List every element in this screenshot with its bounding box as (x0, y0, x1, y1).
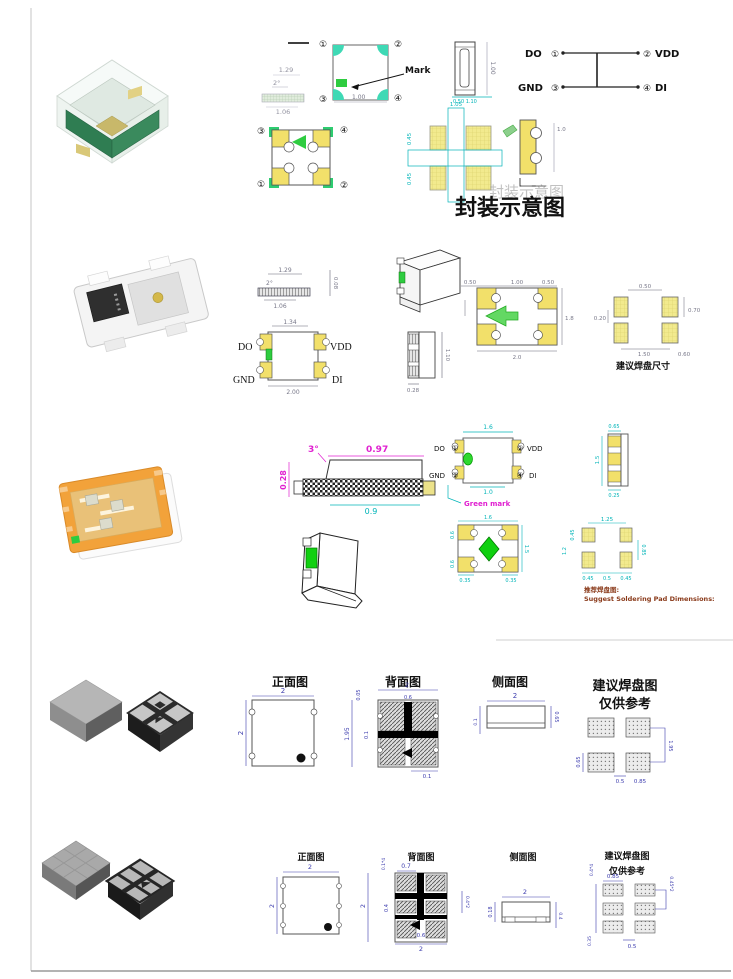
dim-label: 0.7 (401, 863, 411, 870)
pin-number: ① (451, 444, 458, 453)
dim-label: 0.60 (678, 352, 691, 358)
pad (397, 901, 416, 913)
row3-bottom-view: 1.6 0.6 0.6 1.5 0.35 0.35 (450, 515, 529, 584)
pad (426, 921, 445, 938)
pin-number: ② (340, 181, 348, 191)
pad (635, 884, 655, 896)
pad (430, 166, 446, 190)
pin-number: ① (319, 40, 327, 50)
pad (466, 126, 491, 150)
row1-pinout-diagram: DO ① ② VDD GND ③ ④ DI (518, 49, 679, 94)
row1-top-view: ① ② ③ ④ Mark 1.00 (319, 40, 432, 105)
dim-label: 0.20 (594, 316, 607, 322)
dim-label: 0.45*2 (668, 876, 674, 891)
green-mark (306, 548, 317, 568)
dim-label: 0.08 (332, 277, 338, 290)
row3-side-view: 0.65 1.5 0.25 (595, 424, 628, 499)
pin-number: ② (643, 50, 651, 60)
green-mark (266, 349, 272, 360)
row3-pad-caption-en: Suggest Soldering Pad Dimensions: (584, 595, 715, 603)
dim-label: 2 (419, 945, 423, 953)
dim-label: 0.45 (407, 172, 413, 185)
dim-label: 2 (513, 692, 517, 700)
dim-label: 0.1*4 (381, 858, 387, 870)
pin-label: VDD (527, 445, 543, 453)
green-mark (503, 125, 517, 137)
pin-number: ③ (319, 95, 327, 105)
dim-label: 2 (359, 904, 367, 908)
dim-label: 1.95 (344, 727, 351, 741)
row4-pads-subtitle: 仅供参考 (598, 696, 651, 712)
dim-label: 0.6 (450, 531, 456, 539)
pad (430, 126, 446, 150)
dim-label: 0.65 (553, 711, 559, 722)
dim-label: 1.8 (565, 316, 574, 322)
pin-label: GND (233, 375, 255, 386)
dim-label: 1.06 (276, 108, 290, 116)
row4-pads-title: 建议焊盘图 (592, 678, 657, 694)
pad (635, 921, 655, 933)
dim-label: 0.65 (576, 756, 582, 767)
row1-side-sketch: 1.0 (503, 120, 566, 186)
row2-white-led-photo (71, 250, 211, 356)
pin1-dot (297, 754, 306, 763)
dim-label: 0.4 (384, 904, 390, 912)
green-mark (71, 536, 80, 544)
pad (626, 753, 650, 772)
pad (626, 718, 650, 737)
dim-label: 0.28 (407, 388, 420, 394)
row2-side-view: 1.10 0.28 (407, 332, 450, 394)
pad (582, 528, 595, 542)
datasheet-page: 1.29 2° 1.06 ① ② ③ ④ Mark 1.00 1.00 0.50… (0, 0, 733, 979)
dim-label: 0.50 (639, 284, 652, 290)
pad (426, 875, 445, 891)
pin-number: ④ (340, 126, 348, 136)
row2-3d-sketch (397, 250, 460, 312)
pin-label: DI (655, 83, 667, 94)
row3-profile-drawing: 3° 0.97 0.28 0.9 (279, 445, 435, 516)
row1-bottom-view: ③ ④ ① ② (257, 126, 348, 191)
pad (603, 903, 623, 915)
pad (397, 875, 416, 891)
dim-label: 0.1 (473, 718, 479, 725)
dim-label: 1.5 (523, 545, 529, 554)
dim-label: 0.5 (603, 576, 611, 582)
dim-label: 1.50 (638, 352, 651, 358)
dim-label: 0.28 (279, 470, 288, 490)
dim-label: 0.5 (628, 944, 637, 950)
pin-label: VDD (655, 49, 679, 60)
pin-number: ③ (257, 127, 265, 137)
dim-label: 0.05 (356, 689, 362, 700)
row4-side-title: 侧面图 (492, 674, 528, 689)
green-mark-label: Green mark (464, 500, 511, 508)
dim-label: 0.4 (557, 912, 563, 919)
row5-side-view: 侧面图 2 0.18 0.4 (488, 851, 563, 928)
dim-label: 0.50 (464, 280, 477, 286)
dim-label: 2 (237, 731, 245, 735)
pin-number: ② (394, 40, 402, 50)
pad (588, 753, 614, 772)
row2-pad-layout: 0.50 0.70 0.20 1.50 0.60 建议焊盘尺寸 (594, 284, 701, 372)
row3-orange-led-photo (59, 465, 183, 561)
dim-label: 3° (308, 445, 319, 455)
pad (411, 702, 436, 731)
dim-label: 0.18 (488, 906, 494, 917)
dim-label: 0.65 (608, 424, 619, 430)
dim-label: 1.00 (352, 94, 366, 101)
chip (110, 499, 124, 511)
dim-label: 0.45 (620, 576, 631, 582)
pad (614, 297, 628, 317)
dim-label: 1.25 (601, 517, 614, 523)
dim-label: 0.9 (365, 507, 378, 516)
dim-label: 1.0 (483, 489, 493, 496)
dim-label: 1.06 (273, 303, 287, 310)
pad (620, 552, 632, 568)
pad (380, 736, 405, 765)
dim-label: 1.6 (484, 515, 492, 521)
dim-label: 0.45 (570, 529, 576, 540)
pin-number: ④ (394, 94, 402, 104)
pin-number: ③ (451, 471, 458, 480)
pin-label: GND (429, 472, 445, 480)
dim-label: 1.5 (595, 455, 601, 464)
row4-pad-layout: 建议焊盘图 仅供参考 0.65 1.95 0.5 0.85 (576, 678, 673, 785)
dim-label: 0.6 (404, 695, 412, 701)
dim-label: 2 (523, 888, 527, 896)
row5-pad-layout: 建议焊盘图 仅供参考 0.4*4 0.85 0.45*2 0.35 0.5 (587, 850, 674, 950)
dim-label: 0.4*4 (589, 864, 595, 876)
dim-label: 0.45 (407, 132, 413, 145)
dim-label: 0.35 (505, 578, 516, 584)
dim-label: 0.35 (459, 578, 470, 584)
datasheet-figure: 1.29 2° 1.06 ① ② ③ ④ Mark 1.00 1.00 0.50… (0, 0, 733, 979)
row3-3d-sketch (302, 533, 362, 608)
row4-front-view: 正面图 2 2 (237, 675, 317, 766)
pin-number: ③ (551, 84, 559, 94)
row5-side-title: 侧面图 (509, 851, 536, 863)
dim-label: 1.34 (283, 319, 297, 326)
green-mark (464, 453, 473, 465)
pin1-dot (324, 923, 332, 931)
pin-number: ② (516, 444, 523, 453)
pad (582, 552, 595, 568)
dim-label: 0.50 (542, 280, 555, 286)
dim-label: 1.6 (483, 424, 493, 431)
pin-number: ① (551, 50, 559, 60)
pin-number: ① (257, 180, 265, 190)
pad (620, 528, 632, 542)
chip (99, 518, 113, 530)
dim-label: 1.95 (667, 740, 673, 751)
dim-label: 0.6 (450, 560, 456, 568)
row1-side-view: 1.00 0.50 1.10 (452, 42, 496, 105)
pad (662, 297, 678, 317)
pin-label: DI (332, 375, 343, 386)
dim-label: 0.97 (366, 445, 388, 455)
pad (662, 323, 678, 343)
row5-back-title: 背面图 (407, 851, 434, 863)
pin-label: GND (518, 83, 543, 94)
pin-label: DI (529, 472, 536, 480)
dim-label: 1.2 (562, 547, 568, 555)
dim-label: 0.5 (616, 779, 625, 785)
pad (603, 884, 623, 896)
dim-label: 1.10 (444, 349, 450, 362)
dim-label: 2° (273, 79, 280, 87)
dim-label: 2° (266, 280, 273, 287)
row5-front-title: 正面图 (297, 852, 324, 863)
dim-label: 1.29 (279, 66, 293, 74)
pin-number: ④ (516, 471, 523, 480)
pad (588, 718, 614, 737)
dim-label: 2 (268, 904, 276, 908)
row4-front-title: 正面图 (272, 675, 308, 689)
row2-profile-drawing: 1.29 2° 1.06 0.08 (258, 267, 338, 310)
dim-label: 0.4*2 (464, 896, 470, 908)
dim-label: 2 (405, 681, 409, 689)
dim-label: 1.29 (278, 267, 292, 274)
row5-dark-packages-photo (42, 841, 175, 920)
pad (635, 903, 655, 915)
row5-pads-title: 建议焊盘图 (604, 850, 649, 862)
row2-pad-caption: 建议焊盘尺寸 (616, 360, 670, 372)
green-mark (336, 79, 347, 87)
dim-label: 2 (281, 687, 285, 695)
dim-label: 1.05 (450, 102, 463, 108)
pad (380, 702, 405, 731)
row5-back-view: 背面图 0.1*4 0.7 2 0.4 0.6 2 0.4*2 (359, 851, 470, 953)
row4-side-view: 侧面图 2 0.65 0.1 (473, 674, 559, 734)
dim-label: 0.1 (364, 731, 370, 739)
pin-label: DO (434, 445, 445, 453)
row4-gray-packages-photo (50, 680, 194, 752)
pad (614, 323, 628, 343)
row3-pad-caption-cn: 推荐焊盘图: (584, 585, 619, 594)
dim-label: 0.45 (582, 576, 593, 582)
pin-label: DO (525, 49, 542, 60)
chip (85, 494, 99, 506)
dim-label: 0.25 (608, 493, 619, 499)
pin-label: VDD (330, 342, 352, 353)
dim-label: 2.0 (513, 355, 522, 361)
dim-label: 2.00 (286, 389, 300, 396)
dim-label: 1.0 (557, 127, 566, 133)
dim-label: 0.6 (417, 933, 426, 939)
dim-label: 0.1 (423, 774, 432, 780)
row4-back-view: 背面图 0.05 2 0.6 1.95 0.1 0.1 (344, 674, 439, 780)
dim-label: 1.00 (511, 280, 524, 286)
pad (426, 901, 445, 913)
dim-label: 0.85 (640, 544, 646, 555)
pin-label: DO (238, 342, 252, 353)
pad (603, 921, 623, 933)
row2-bottom-view: 0.50 1.00 0.50 1.8 2.0 (461, 280, 574, 361)
row2-outline-view: 1.34 DO VDD GND DI 2.00 (233, 319, 352, 396)
mark-label: Mark (405, 66, 431, 76)
pad (411, 736, 436, 765)
row1-profile-drawing: 1.29 2° 1.06 (262, 66, 304, 116)
dim-label: 1.00 (489, 61, 496, 75)
row1-clear-led-photo (57, 60, 168, 163)
dim-label: 0.70 (688, 308, 701, 314)
row3-pad-layout: 1.25 0.45 1.2 0.85 0.45 0.5 0.45 推荐焊盘图: … (562, 517, 715, 603)
pad (466, 166, 491, 190)
row5-front-view: 正面图 2 2 (268, 852, 342, 934)
pin-number: ④ (643, 84, 651, 94)
row3-pin-view: DO ① ② VDD GND ③ ④ DI 1.6 1.0 Green mark (429, 424, 543, 508)
dim-label: 0.85 (634, 779, 647, 785)
green-mark (399, 272, 405, 283)
row1-caption: 封装示意图 (455, 195, 565, 221)
dim-label: 0.35 (587, 936, 593, 946)
row4-back-title: 背面图 (385, 674, 421, 689)
row1-pad-layout: 1.05 0.45 0.45 (407, 102, 502, 202)
dim-label: 2 (308, 863, 312, 871)
dim-label: 0.85 (607, 874, 620, 880)
